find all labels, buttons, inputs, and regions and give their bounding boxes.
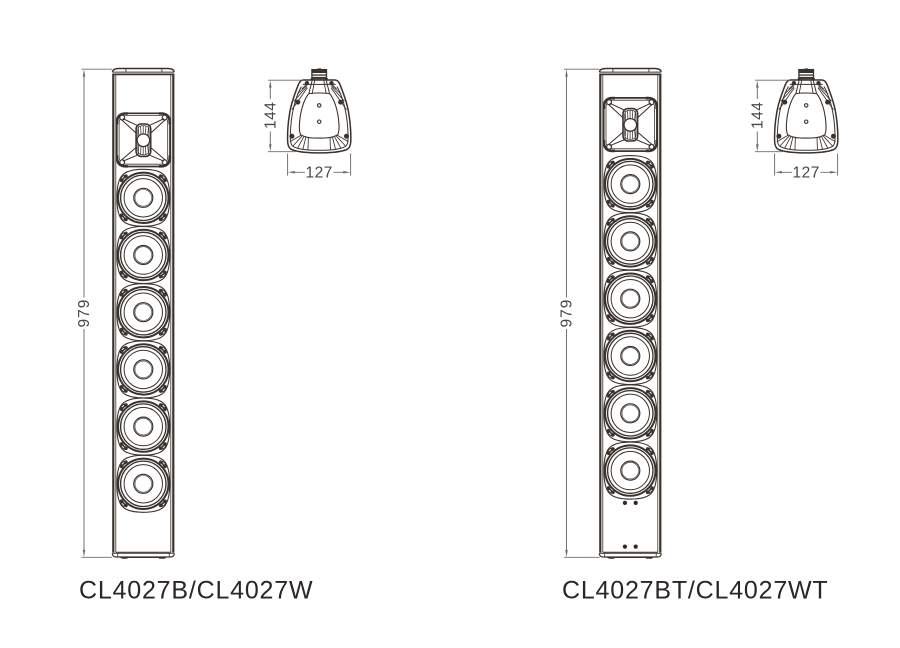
svg-text:144: 144: [749, 102, 766, 129]
svg-text:144: 144: [262, 102, 279, 129]
svg-text:127: 127: [306, 165, 333, 182]
svg-text:CL4027BT/CL4027WT: CL4027BT/CL4027WT: [562, 577, 829, 605]
svg-text:979: 979: [559, 299, 576, 328]
svg-text:127: 127: [793, 165, 820, 182]
svg-text:979: 979: [76, 299, 93, 328]
svg-text:CL4027B/CL4027W: CL4027B/CL4027W: [79, 577, 313, 605]
